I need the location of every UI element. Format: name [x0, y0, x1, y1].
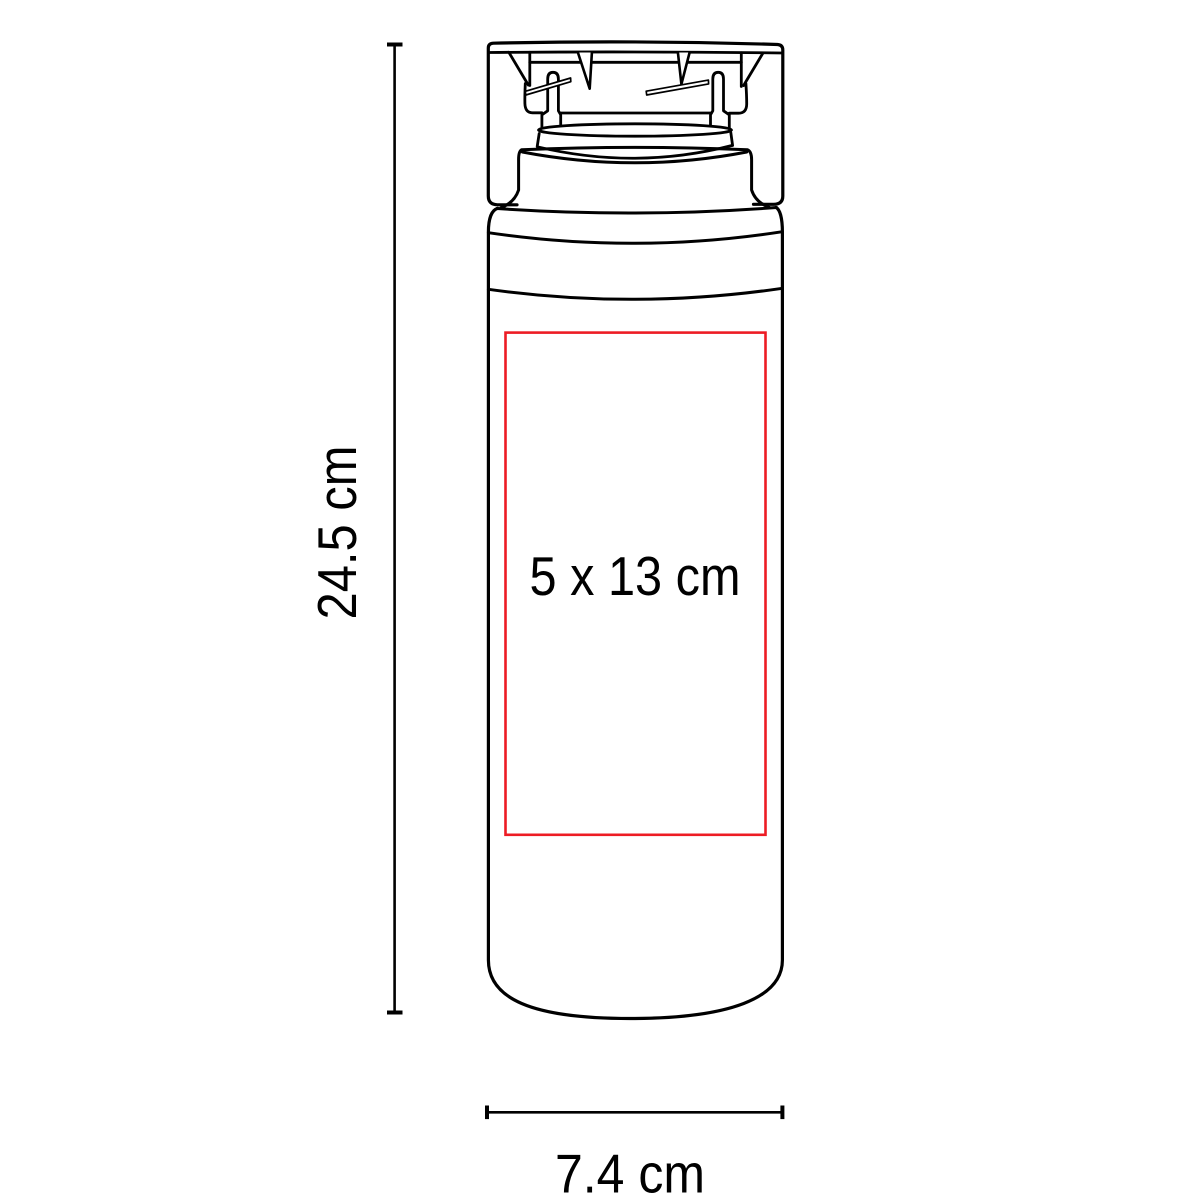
svg-text:24.5 cm: 24.5 cm	[306, 446, 368, 620]
svg-text:5 x 13 cm: 5 x 13 cm	[530, 545, 741, 607]
svg-text:7.4 cm: 7.4 cm	[555, 1143, 705, 1200]
